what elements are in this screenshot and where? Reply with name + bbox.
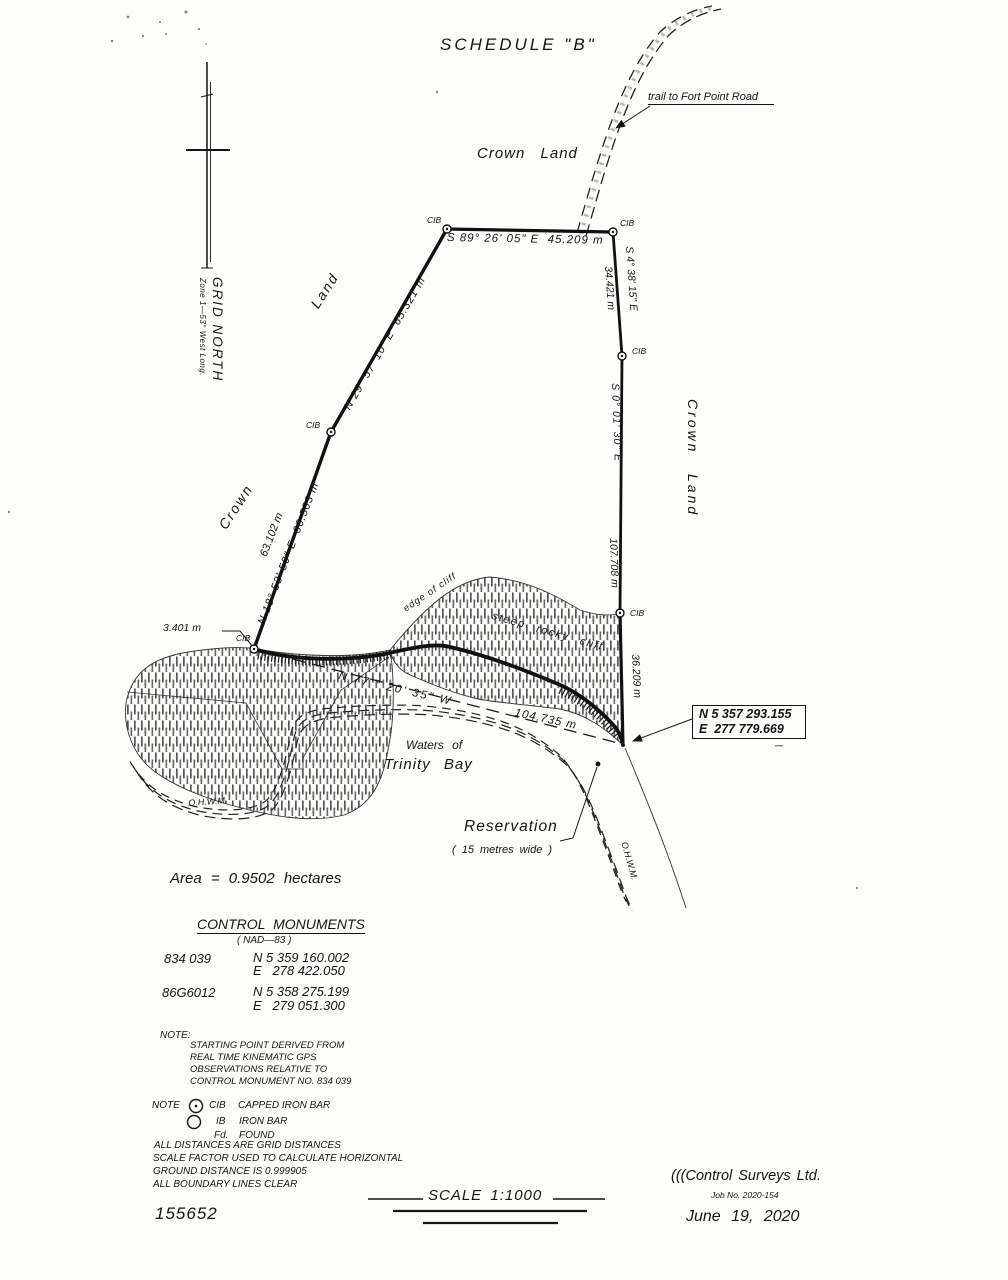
note-line: GROUND DISTANCE IS 0.999905 (153, 1166, 307, 1177)
note-line: STARTING POINT DERIVED FROM (190, 1041, 344, 1051)
shore-line-se (625, 748, 686, 908)
survey-date: June 19, 2020 (686, 1208, 799, 1226)
crown-right-label-1: Crown (685, 399, 700, 454)
plan-number: 155652 (155, 1205, 218, 1224)
trinity-bay-label: Trinity Bay (384, 757, 473, 774)
trail-label: trail to Fort Point Road (648, 91, 774, 105)
grid-north-label: GRID NORTH (209, 277, 224, 382)
grid-north-arrow (186, 62, 230, 268)
distance-right-lower: 36.209 m (628, 654, 642, 698)
monument-easting: E 279 051.300 (253, 999, 345, 1013)
distance-right: 107.708 m (606, 538, 619, 588)
note-line: ALL DISTANCES ARE GRID DISTANCES (154, 1140, 341, 1151)
legend-ib-abbr: IB (216, 1116, 225, 1127)
note-line: REAL TIME KINEMATIC GPS (190, 1053, 316, 1063)
legend-symbols (188, 1100, 203, 1129)
cib-label-east-upper: CIB (632, 347, 646, 356)
legend-ib-text: IRON BAR (239, 1116, 287, 1127)
corner-coordinate-box: N 5 357 293.155 E 277 779.669 (692, 705, 806, 739)
cib-label-east-lower: CIB (630, 609, 644, 618)
area-label: Area = 0.9502 hectares (170, 871, 341, 888)
survey-plan-sheet: SCHEDULE "B" trail to Fort Point Road Cr… (0, 0, 1008, 1280)
cib-label-shore: CIB (236, 634, 250, 643)
legend-cib-abbr: CIB (209, 1100, 226, 1111)
cib-label-ne: CIB (620, 219, 634, 228)
trail-path (577, 6, 721, 236)
zone-label: Zone 1—53° West Long. (197, 278, 206, 376)
company-name: (((Control Surveys Ltd. (671, 1169, 821, 1185)
job-number: Job No. 2020-154 (711, 1191, 779, 1200)
cib-label-nw: CIB (427, 216, 441, 225)
cib-label-west-mid: CIB (306, 421, 320, 430)
legend-note-label: NOTE (152, 1100, 180, 1111)
note-line: CONTROL MONUMENT NO. 834 039 (190, 1077, 351, 1087)
plan-linework (0, 0, 1008, 1280)
bearing-right: S 0° 01' 30" E (608, 383, 622, 462)
note-line: ALL BOUNDARY LINES CLEAR (153, 1179, 297, 1190)
bearing-top: S 89° 26' 05" E 45.209 m (447, 232, 604, 247)
control-monuments-heading: CONTROL MONUMENTS (197, 917, 365, 934)
monument-id: 86G6012 (162, 986, 216, 1000)
offset-distance: 3.401 m (163, 623, 201, 635)
control-monuments-datum: ( NAD—83 ) (237, 935, 291, 946)
reservation-width-label: ( 15 metres wide ) (452, 844, 552, 856)
reservation-label: Reservation (464, 818, 558, 835)
crown-right-label-2: Land (685, 474, 700, 517)
scale-label: SCALE 1:1000 (428, 1188, 542, 1205)
note-heading: NOTE: (160, 1030, 191, 1041)
waters-of-label: Waters of (406, 739, 462, 752)
reservation-point-dot (596, 762, 601, 767)
note-line: SCALE FACTOR USED TO CALCULATE HORIZONTA… (153, 1153, 403, 1164)
note-line: OBSERVATIONS RELATIVE TO (190, 1065, 327, 1075)
legend-cib-text: CAPPED IRON BAR (238, 1100, 330, 1111)
crown-land-top-label: Crown Land (477, 146, 578, 163)
monument-easting: E 278 422.050 (253, 964, 345, 978)
distance-right-upper: 34.421 m (601, 266, 616, 310)
corner-coordinate-north: N 5 357 293.155 (699, 707, 805, 722)
page-title: SCHEDULE "B" (440, 36, 597, 55)
corner-coordinate-east: E 277 779.669 (699, 722, 805, 737)
monument-id: 834 039 (164, 952, 211, 966)
